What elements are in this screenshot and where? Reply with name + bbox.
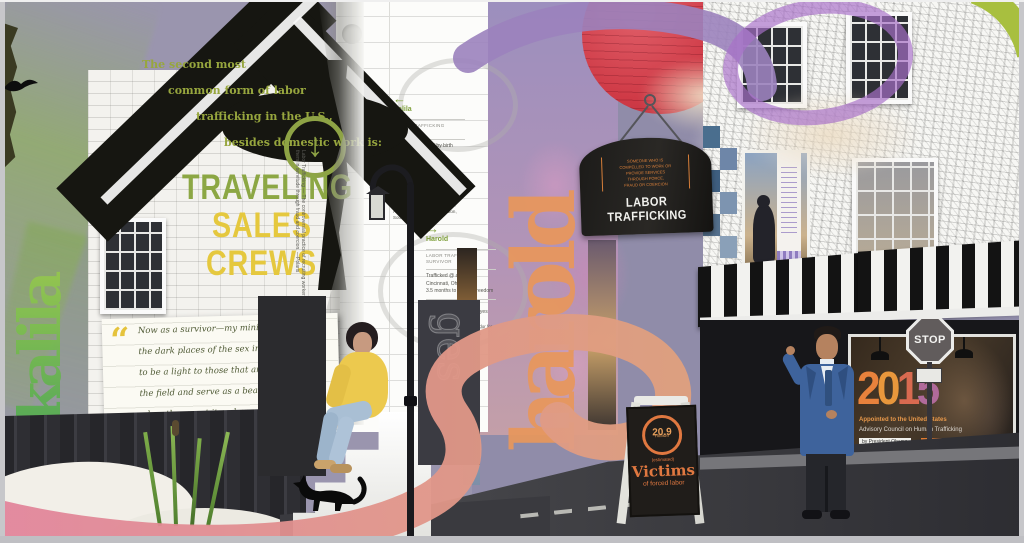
facade-window-upper-right: [846, 12, 912, 104]
harold-margin-name: harold: [494, 22, 595, 452]
year-digit: 1: [897, 362, 917, 414]
lamp-post-pole: [407, 182, 414, 543]
pendant-lamp-shade: [955, 349, 973, 358]
board-face: 20.9 million (estimated) Victims of forc…: [626, 405, 700, 517]
down-arrow-glyph: ↓: [307, 126, 324, 164]
frame-right: [1019, 0, 1024, 543]
grass-seed-head: [172, 420, 179, 436]
stop-sign: STOP: [906, 316, 954, 364]
man-hand: [826, 410, 837, 419]
headline-traveling: TRAVELING: [182, 170, 353, 205]
sign-title: LABOR TRAFFICKING: [588, 193, 705, 225]
man-tie: [825, 370, 832, 406]
frame-bottom: [0, 536, 1024, 543]
frame-left: [0, 0, 5, 543]
grass-blades: [148, 424, 234, 526]
man-face: [816, 334, 838, 360]
labor-trafficking-sign: SOMEONE WHO IS COMPELLED TO WORK OR PROV…: [578, 136, 713, 237]
grass-blade: [171, 426, 178, 526]
stop-sign-face: STOP: [909, 319, 951, 361]
sign-definition: SOMEONE WHO IS COMPELLED TO WORK OR PROV…: [601, 154, 690, 191]
cloud-on-facade: [740, 90, 920, 180]
child-silhouette: [753, 205, 775, 265]
dark-entry-wall: [258, 296, 326, 476]
small-street-plaque: [916, 368, 942, 383]
year-digit: 0: [877, 362, 897, 414]
profile-name: Harold: [426, 235, 496, 246]
ghost-text: ges: [428, 312, 474, 462]
man-shoe: [830, 510, 850, 519]
man-shoe: [802, 510, 822, 519]
intro-line: common form of labor: [168, 84, 306, 97]
magazine-spread: ← Kalila LABOR TRAFFICKING SURVIVOR Traf…: [0, 0, 1024, 543]
harold-figure: [792, 326, 862, 526]
sandwich-board: 20.9 million (estimated) Victims of forc…: [612, 392, 712, 532]
definition-line: FRAUD OR COERCION: [607, 181, 685, 190]
board-title: Victims: [630, 461, 697, 481]
lamp-post-collar: [404, 396, 417, 406]
man-pants-split: [825, 466, 828, 512]
poster-line2: Advisory Council on Human Trafficking: [859, 427, 962, 433]
man-hand: [786, 346, 795, 355]
woman-shoe: [330, 464, 352, 473]
kalila-margin-name: kalila: [6, 122, 74, 422]
child-silhouette-head: [757, 195, 770, 208]
stop-sign-text: STOP: [914, 334, 946, 346]
poster-line1: Appointed to the United States: [859, 417, 947, 423]
grass-blade: [206, 432, 230, 527]
frame-top: [0, 0, 1024, 2]
woman-figure: [320, 320, 410, 480]
quote-mark: “: [110, 320, 131, 360]
left-arrow-icon: ←: [393, 92, 465, 105]
intro-line: The second most: [142, 58, 246, 71]
pendant-lamp-shade: [871, 351, 889, 360]
grass-blade: [190, 438, 202, 526]
